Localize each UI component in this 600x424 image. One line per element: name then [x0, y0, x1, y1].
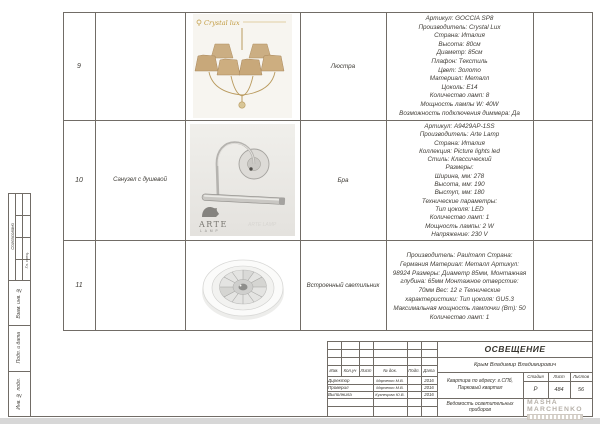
- client-name: Крым Владимир Владимирович: [437, 357, 593, 372]
- titleblock-line: [407, 341, 408, 416]
- rail-box-inv-podl: Инв. № подл.: [8, 371, 30, 416]
- sig-role-checker: Проверил: [328, 384, 372, 391]
- table-line: [533, 12, 534, 330]
- sig-date-director: 2016: [421, 376, 437, 384]
- rail-line: [30, 193, 31, 416]
- frame-bottom-line: [8, 416, 593, 417]
- row10-photo-picture-light: ARTE LAMP ARTE LAMP: [190, 124, 295, 241]
- inv-podl-label: Инв. № подл.: [16, 378, 22, 410]
- podp-data-label: Подп. и дата: [16, 332, 22, 363]
- row10-number: 10: [63, 120, 95, 240]
- doc-title: ОСВЕЩЕНИЕ: [437, 341, 593, 357]
- row11-specs: Производитель: Paulmann Страна: Германия…: [392, 252, 527, 322]
- spotlight-drawing: [202, 260, 284, 320]
- sig-role-director: Директор: [328, 376, 372, 384]
- sig-name-director: Марченко М.В.: [373, 376, 407, 384]
- table-line: [386, 12, 387, 330]
- row10-specs: Артикул: A9429AP-1SS Производитель: Arte…: [390, 123, 529, 239]
- titleblock-line: [327, 349, 437, 350]
- row10-room: Санузел с душевой: [98, 120, 182, 240]
- rev-header-koluch: Кол.уч: [341, 365, 359, 376]
- arte-watermark: ARTE LAMP: [247, 222, 277, 228]
- rev-header-data: Дата: [421, 365, 437, 376]
- row9-type: Люстра: [300, 12, 386, 120]
- crystal-lux-brand: Crystal lux: [204, 19, 240, 27]
- approved-label: Согласовано: [10, 223, 15, 250]
- row11-number: 11: [63, 240, 95, 330]
- rev-header-podp: Подп.: [407, 365, 421, 376]
- sig-name-checker: Марченко М.В.: [373, 384, 407, 391]
- stage-label: Стадия: [523, 372, 548, 381]
- sheets-label: Листов: [570, 372, 592, 381]
- rev-header-izm: Изм.: [327, 365, 341, 376]
- lighting-specification-sheet: Согласовано Гл. спец. Взам. инв. № Подп.…: [0, 0, 600, 424]
- logo-line2: MARCHENKO: [527, 406, 589, 413]
- table-line: [95, 12, 96, 330]
- rail-line: [15, 215, 30, 216]
- row9-photo-chandelier: Crystal lux: [193, 14, 292, 123]
- drawing-sheet: Согласовано Гл. спец. Взам. инв. № Подп.…: [0, 0, 600, 418]
- gl-spec-label: Гл. спец.: [24, 252, 29, 268]
- logo-tagline: [527, 414, 583, 420]
- sheet-number: 484: [548, 381, 570, 398]
- masha-marchenko-logo: MASHA MARCHENKO: [527, 399, 589, 415]
- table-line: [185, 12, 186, 330]
- arte-logo-text: ARTE: [198, 220, 228, 229]
- row10-type: Бра: [300, 120, 386, 240]
- sig-date-checker: 2016: [421, 384, 437, 391]
- rev-header-list: Лист: [359, 365, 373, 376]
- sig-role-author: Выполнила: [328, 391, 372, 398]
- rail-box-vzam: Взам. инв. №: [8, 280, 30, 325]
- titleblock-line: [327, 406, 437, 407]
- vzam-label: Взам. инв. №: [16, 287, 22, 319]
- lamp-logo-text: LAMP: [200, 229, 221, 233]
- row11-photo-spotlight: [200, 245, 286, 334]
- table-line: [63, 330, 593, 331]
- rail-box-approved: Согласовано: [8, 193, 16, 280]
- row9-specs: Артикул: GOCCIA SP8 Производитель: Cryst…: [390, 15, 529, 118]
- rail-line: [15, 237, 30, 238]
- sig-name-author: Кузнецова Ю.В.: [373, 391, 407, 398]
- sig-date-author: 2016: [421, 391, 437, 398]
- rev-header-doc: № док.: [373, 365, 407, 376]
- sheet-label: Лист: [548, 372, 570, 381]
- rail-cell-gl-spec: Гл. спец.: [22, 240, 30, 280]
- project-address: Квартира по адресу: г.СПб, Парковый квар…: [440, 372, 520, 398]
- row9-number: 9: [63, 12, 95, 120]
- row11-type: Встроенный светильник: [300, 240, 386, 330]
- sheets-total: 56: [570, 381, 592, 398]
- rail-box-podp-data: Подп. и дата: [8, 325, 30, 371]
- stage-value: Р: [523, 381, 548, 398]
- logo-line1: MASHA: [527, 399, 589, 406]
- document-name: Ведомость осветительных приборов: [440, 398, 520, 416]
